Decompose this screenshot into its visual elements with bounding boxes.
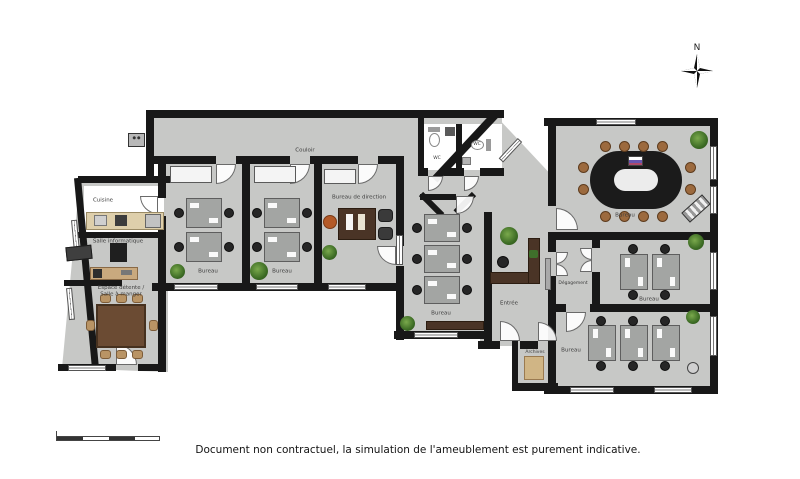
- office-chair: [660, 316, 670, 326]
- conference-chair: [578, 162, 589, 173]
- fan: [687, 362, 699, 374]
- desk: [186, 198, 222, 228]
- wall: [512, 341, 518, 389]
- office-chair: [497, 256, 509, 268]
- dining-chair: [116, 350, 127, 359]
- wall: [548, 118, 556, 206]
- room-label-archives: Archives: [525, 350, 544, 355]
- desk-papers: [358, 214, 365, 230]
- office-chair: [174, 208, 184, 218]
- office-chair: [596, 361, 606, 371]
- room-label-bureau-reunion: Bureau: [615, 212, 635, 218]
- office-chair: [628, 316, 638, 326]
- window: [710, 252, 717, 290]
- office-chair: [252, 242, 262, 252]
- room-label-line: Espace détente /: [98, 284, 144, 290]
- desk: [424, 214, 460, 242]
- wall: [418, 118, 424, 174]
- desk: [186, 232, 222, 262]
- floor-plan-page: Couloir Cuisine Salle informatique Espac…: [0, 0, 800, 479]
- plant: [686, 310, 700, 324]
- room-label-wc1: WC: [433, 156, 441, 161]
- office-chair: [302, 208, 312, 218]
- radiator: [545, 258, 551, 290]
- desk: [620, 254, 648, 290]
- room-label-salle-informatique: Salle informatique: [93, 238, 143, 244]
- plant: [688, 234, 704, 250]
- room-label-bureau-1: Bureau: [198, 268, 218, 274]
- window: [68, 365, 106, 371]
- dining-chair: [132, 350, 143, 359]
- office-chair: [462, 254, 472, 264]
- conference-chair: [685, 184, 696, 195]
- office-chair: [660, 290, 670, 300]
- office-chair: [628, 290, 638, 300]
- desk: [652, 325, 680, 361]
- room-label-degagement: Dégagement: [558, 281, 587, 286]
- room-label-bureau-est-1: Bureau: [639, 296, 659, 302]
- room-label-bureau-open: Bureau: [431, 310, 451, 316]
- conference-chair: [685, 162, 696, 173]
- coffee-machine: [93, 269, 102, 278]
- wc-cabinet: [445, 127, 455, 136]
- office-chair: [660, 244, 670, 254]
- desk-cluster: [172, 196, 236, 264]
- window: [710, 146, 717, 180]
- office-chair: [628, 361, 638, 371]
- conference-chair: [600, 141, 611, 152]
- wall: [478, 341, 500, 349]
- dining-chair: [86, 320, 95, 331]
- toilet: [429, 133, 440, 147]
- window: [174, 284, 218, 290]
- guest-chair: [378, 227, 393, 240]
- window: [654, 387, 692, 393]
- desk-papers: [346, 214, 353, 230]
- office-chair: [224, 208, 234, 218]
- wall: [552, 304, 566, 312]
- server-tower: [110, 243, 127, 262]
- desk: [264, 198, 300, 228]
- office-chair: [628, 244, 638, 254]
- wall: [378, 156, 404, 164]
- office-chair: [252, 208, 262, 218]
- wall: [310, 156, 358, 164]
- conference-chair: [638, 211, 649, 222]
- wall: [152, 156, 216, 164]
- wall: [314, 164, 322, 290]
- desk-plant: [529, 250, 538, 258]
- plant: [400, 316, 415, 331]
- conference-chair: [638, 141, 649, 152]
- desk-cluster: [586, 316, 682, 372]
- window: [710, 316, 717, 356]
- table-logo: [628, 156, 643, 166]
- office-chair: [174, 242, 184, 252]
- office-chair: [412, 223, 422, 233]
- compass-north-label: N: [694, 43, 701, 53]
- wall: [396, 164, 404, 246]
- electrical-panel: [128, 133, 145, 147]
- plant: [250, 262, 268, 280]
- toilet-tank: [486, 139, 491, 151]
- wall: [420, 194, 456, 200]
- conference-chair: [619, 141, 630, 152]
- conference-chair: [600, 211, 611, 222]
- kitchen-stove: [115, 215, 127, 226]
- office-chair: [412, 285, 422, 295]
- room-label-entree: Entrée: [500, 300, 518, 306]
- window: [710, 186, 717, 214]
- desk: [588, 325, 616, 361]
- wall: [418, 168, 428, 176]
- room-label-bureau-est-2: Bureau: [561, 347, 581, 353]
- scale-bar: [56, 436, 160, 441]
- office-chair: [224, 242, 234, 252]
- room-label-espace-detente: Espace détente /Salle à manger: [98, 284, 144, 297]
- desk-cluster: [410, 212, 474, 308]
- archive-shelf: [524, 356, 544, 380]
- disclaimer-text: Document non contractuel, la simulation …: [195, 444, 640, 456]
- wall: [146, 110, 504, 118]
- compass-rose: N: [681, 38, 713, 96]
- room-label-wc2: WC: [473, 142, 481, 147]
- conference-table-center: [614, 169, 658, 191]
- plant: [322, 245, 337, 260]
- cabinet: [254, 166, 296, 183]
- desk-cluster: [618, 244, 682, 300]
- office-chair: [596, 316, 606, 326]
- office-chair: [462, 223, 472, 233]
- room-label-couloir: Couloir: [295, 147, 314, 153]
- office-chair: [660, 361, 670, 371]
- office-chair: [462, 285, 472, 295]
- cabinet: [324, 169, 356, 184]
- desk: [652, 254, 680, 290]
- window: [414, 332, 458, 338]
- kitchen-appliance: [145, 214, 161, 228]
- wall: [242, 164, 250, 290]
- toilet-tank: [428, 127, 440, 132]
- window: [256, 284, 298, 290]
- reception-desk: [528, 238, 540, 284]
- desk: [620, 325, 648, 361]
- director-desk: [338, 208, 376, 240]
- desk-cluster: [250, 196, 314, 264]
- dining-chair: [149, 320, 158, 331]
- plant: [500, 227, 518, 245]
- desk: [424, 245, 460, 273]
- room-label-bureau-direction: Bureau de direction: [332, 194, 386, 200]
- room-label-line: Salle à manger: [100, 291, 142, 297]
- wall: [480, 168, 504, 176]
- plant: [690, 131, 708, 149]
- wall: [592, 240, 600, 248]
- office-chair: [412, 254, 422, 264]
- kitchen-sink: [94, 215, 107, 226]
- sink: [462, 157, 471, 165]
- dining-table: [96, 304, 146, 348]
- wall: [146, 110, 154, 182]
- wall: [158, 216, 166, 372]
- wall: [520, 341, 538, 349]
- cabinet: [170, 166, 212, 183]
- plant: [170, 264, 185, 279]
- guest-chair: [378, 209, 393, 222]
- conference-chair: [578, 184, 589, 195]
- office-chair: [302, 242, 312, 252]
- wall: [158, 160, 166, 198]
- wall: [236, 156, 290, 164]
- room-label-bureau-2: Bureau: [272, 268, 292, 274]
- it-desk: [65, 245, 92, 262]
- window: [570, 387, 614, 393]
- window: [328, 284, 366, 290]
- wall: [78, 176, 170, 183]
- desk: [264, 232, 300, 262]
- bench: [426, 321, 484, 330]
- window: [396, 235, 403, 265]
- conference-chair: [657, 141, 668, 152]
- window: [596, 119, 636, 125]
- director-chair: [323, 215, 337, 229]
- conference-chair: [657, 211, 668, 222]
- dining-chair: [100, 350, 111, 359]
- scale-bar-tick: [56, 431, 57, 436]
- room-label-cuisine: Cuisine: [93, 197, 113, 203]
- desk: [424, 276, 460, 304]
- tray: [121, 270, 132, 275]
